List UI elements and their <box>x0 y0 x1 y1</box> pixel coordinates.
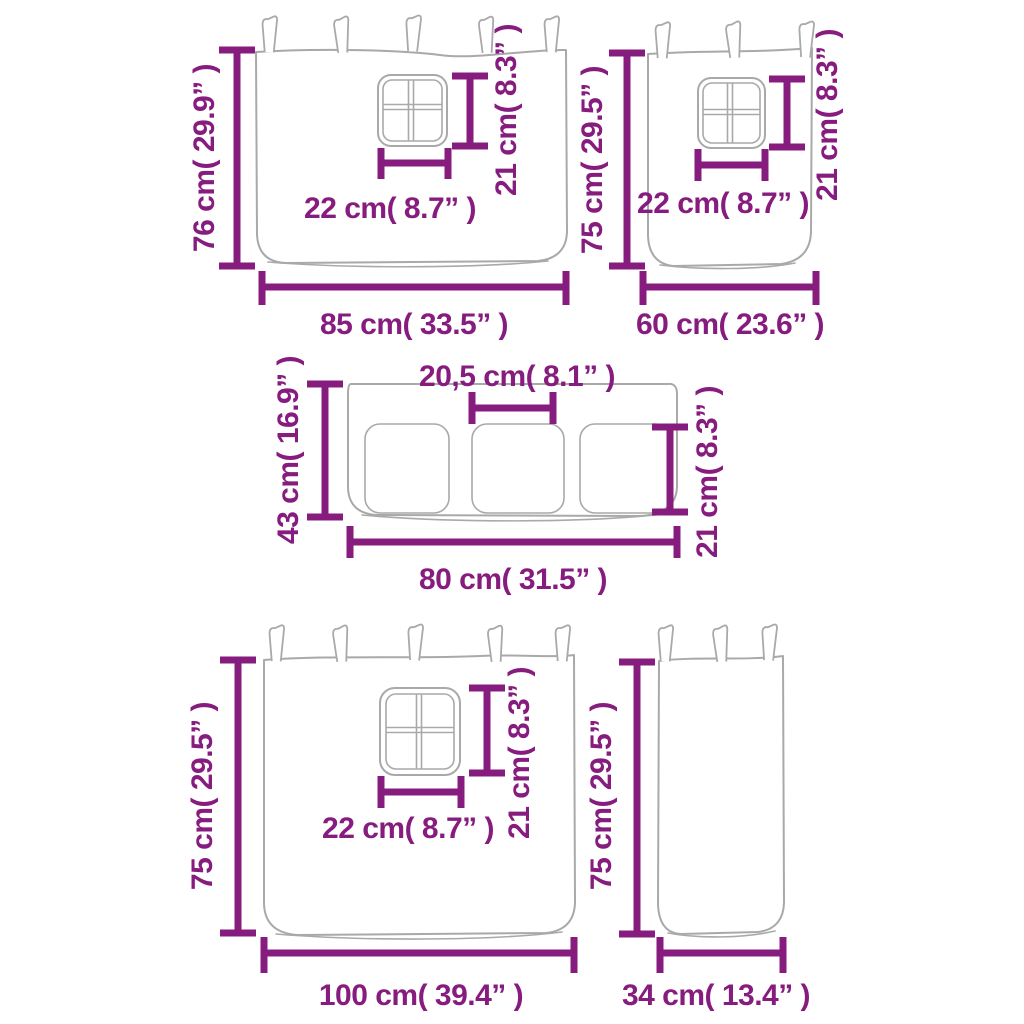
height-dimension-line <box>307 384 343 517</box>
pocket-height-dimension-label: 21 cm( 8.3” ) <box>691 386 724 558</box>
curtain-tab <box>407 624 423 661</box>
width-dimension-line <box>643 271 816 305</box>
curtain-tab <box>555 625 571 662</box>
curtain-tab <box>262 16 278 53</box>
curtain-window <box>380 688 460 775</box>
panel-curtain-100x75: 75 cm( 29.5” ) 22 cm( 8.7” ) 21 cm( 8.3”… <box>186 624 575 1012</box>
window-width-dimension-label: 22 cm( 8.7” ) <box>637 187 809 220</box>
width-dimension-line <box>264 937 574 973</box>
height-dimension-line <box>609 53 645 266</box>
pocket-width-dimension-label: 20,5 cm( 8.1” ) <box>419 360 615 393</box>
curtain-window <box>698 78 765 148</box>
height-dimension-line <box>219 50 255 266</box>
width-dimension-line <box>660 937 783 973</box>
curtain-tab <box>405 15 421 52</box>
panel-curtain-34x75: 75 cm( 29.5” ) 34 cm( 13.4” ) <box>585 624 810 1012</box>
height-dimension-line <box>220 660 256 933</box>
window-outer-frame <box>698 78 765 148</box>
curtain-window <box>378 75 447 146</box>
window-width-dimension-label: 22 cm( 8.7” ) <box>304 192 476 225</box>
width-dimension-line <box>262 271 566 305</box>
width-dimension-label: 85 cm( 33.5” ) <box>320 308 508 341</box>
curtain-body <box>658 656 784 934</box>
width-dimension-line <box>350 526 677 558</box>
width-dimension-label: 80 cm( 31.5” ) <box>419 563 607 596</box>
window-height-dimension-label: 21 cm( 8.3” ) <box>503 667 536 839</box>
width-dimension-label: 34 cm( 13.4” ) <box>622 979 810 1012</box>
panel-curtain-85x76: 76 cm( 29.9” ) 85 cm( 33.5” ) 22 cm( 8.7… <box>188 15 567 341</box>
window-outer-frame <box>380 688 460 775</box>
window-width-dimension-label: 22 cm( 8.7” ) <box>322 812 494 845</box>
window-height-dimension-label: 21 cm( 8.3” ) <box>490 24 523 196</box>
curtain-tab <box>761 624 777 661</box>
curtain-tab <box>488 626 503 662</box>
panel-curtain-60x75: 75 cm( 29.5” ) 60 cm( 23.6” ) 22 cm( 8.7… <box>576 21 844 341</box>
curtain-tab <box>544 16 560 53</box>
height-dimension-label: 75 cm( 29.5” ) <box>186 702 219 890</box>
window-height-dimension-label: 21 cm( 8.3” ) <box>811 29 844 201</box>
width-dimension-label: 100 cm( 39.4” ) <box>319 979 523 1012</box>
curtain-tab <box>334 16 350 53</box>
organizer-body <box>348 384 677 516</box>
curtain-tab <box>333 625 349 662</box>
dimension-diagram: 76 cm( 29.9” ) 85 cm( 33.5” ) 22 cm( 8.7… <box>0 0 1024 1024</box>
height-dimension-label: 43 cm( 16.9” ) <box>272 356 305 544</box>
curtain-tab <box>713 625 729 662</box>
curtain-tab <box>655 22 671 59</box>
curtain-tab <box>658 625 674 662</box>
window-outer-frame <box>378 75 447 146</box>
height-dimension-label: 76 cm( 29.9” ) <box>188 64 221 252</box>
height-dimension-line <box>619 662 655 934</box>
dimension-diagram-canvas: 76 cm( 29.9” ) 85 cm( 33.5” ) 22 cm( 8.7… <box>0 0 1024 1024</box>
height-dimension-label: 75 cm( 29.5” ) <box>585 702 618 890</box>
curtain-tab <box>269 625 285 662</box>
width-dimension-label: 60 cm( 23.6” ) <box>636 308 824 341</box>
panel-pocket-organizer-80x43: 43 cm( 16.9” ) 20,5 cm( 8.1” ) 21 cm( 8.… <box>272 356 724 596</box>
height-dimension-label: 75 cm( 29.5” ) <box>576 66 609 254</box>
